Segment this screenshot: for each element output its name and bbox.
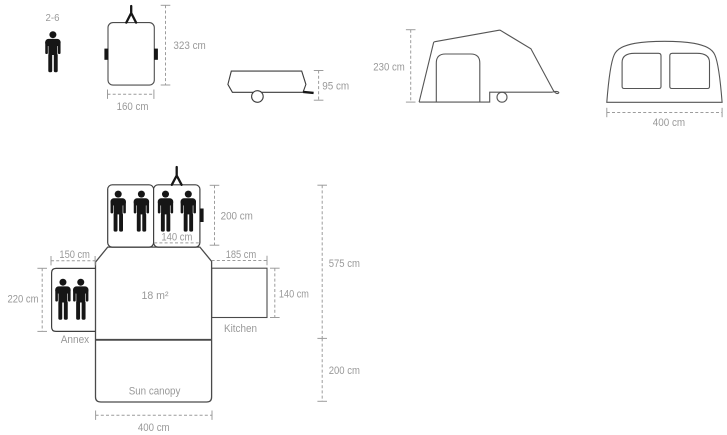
svg-text:140 cm: 140 cm bbox=[279, 288, 309, 300]
svg-text:Kitchen: Kitchen bbox=[224, 323, 257, 335]
svg-text:575 cm: 575 cm bbox=[329, 258, 360, 270]
svg-text:400 cm: 400 cm bbox=[138, 422, 170, 434]
svg-text:140 cm: 140 cm bbox=[161, 231, 192, 243]
svg-text:160 cm: 160 cm bbox=[117, 101, 149, 113]
svg-text:200 cm: 200 cm bbox=[329, 365, 360, 377]
svg-text:220 cm: 220 cm bbox=[8, 294, 39, 306]
svg-text:2-6: 2-6 bbox=[46, 12, 60, 24]
svg-text:18 m²: 18 m² bbox=[142, 290, 169, 302]
svg-text:200 cm: 200 cm bbox=[221, 211, 253, 223]
svg-text:150 cm: 150 cm bbox=[59, 249, 90, 261]
svg-text:400 cm: 400 cm bbox=[653, 117, 685, 129]
svg-text:Sun canopy: Sun canopy bbox=[129, 386, 181, 398]
svg-text:323 cm: 323 cm bbox=[173, 40, 205, 52]
svg-text:230 cm: 230 cm bbox=[373, 62, 405, 74]
svg-text:185 cm: 185 cm bbox=[226, 249, 257, 261]
svg-text:95 cm: 95 cm bbox=[322, 80, 349, 92]
svg-text:Annex: Annex bbox=[61, 334, 90, 346]
